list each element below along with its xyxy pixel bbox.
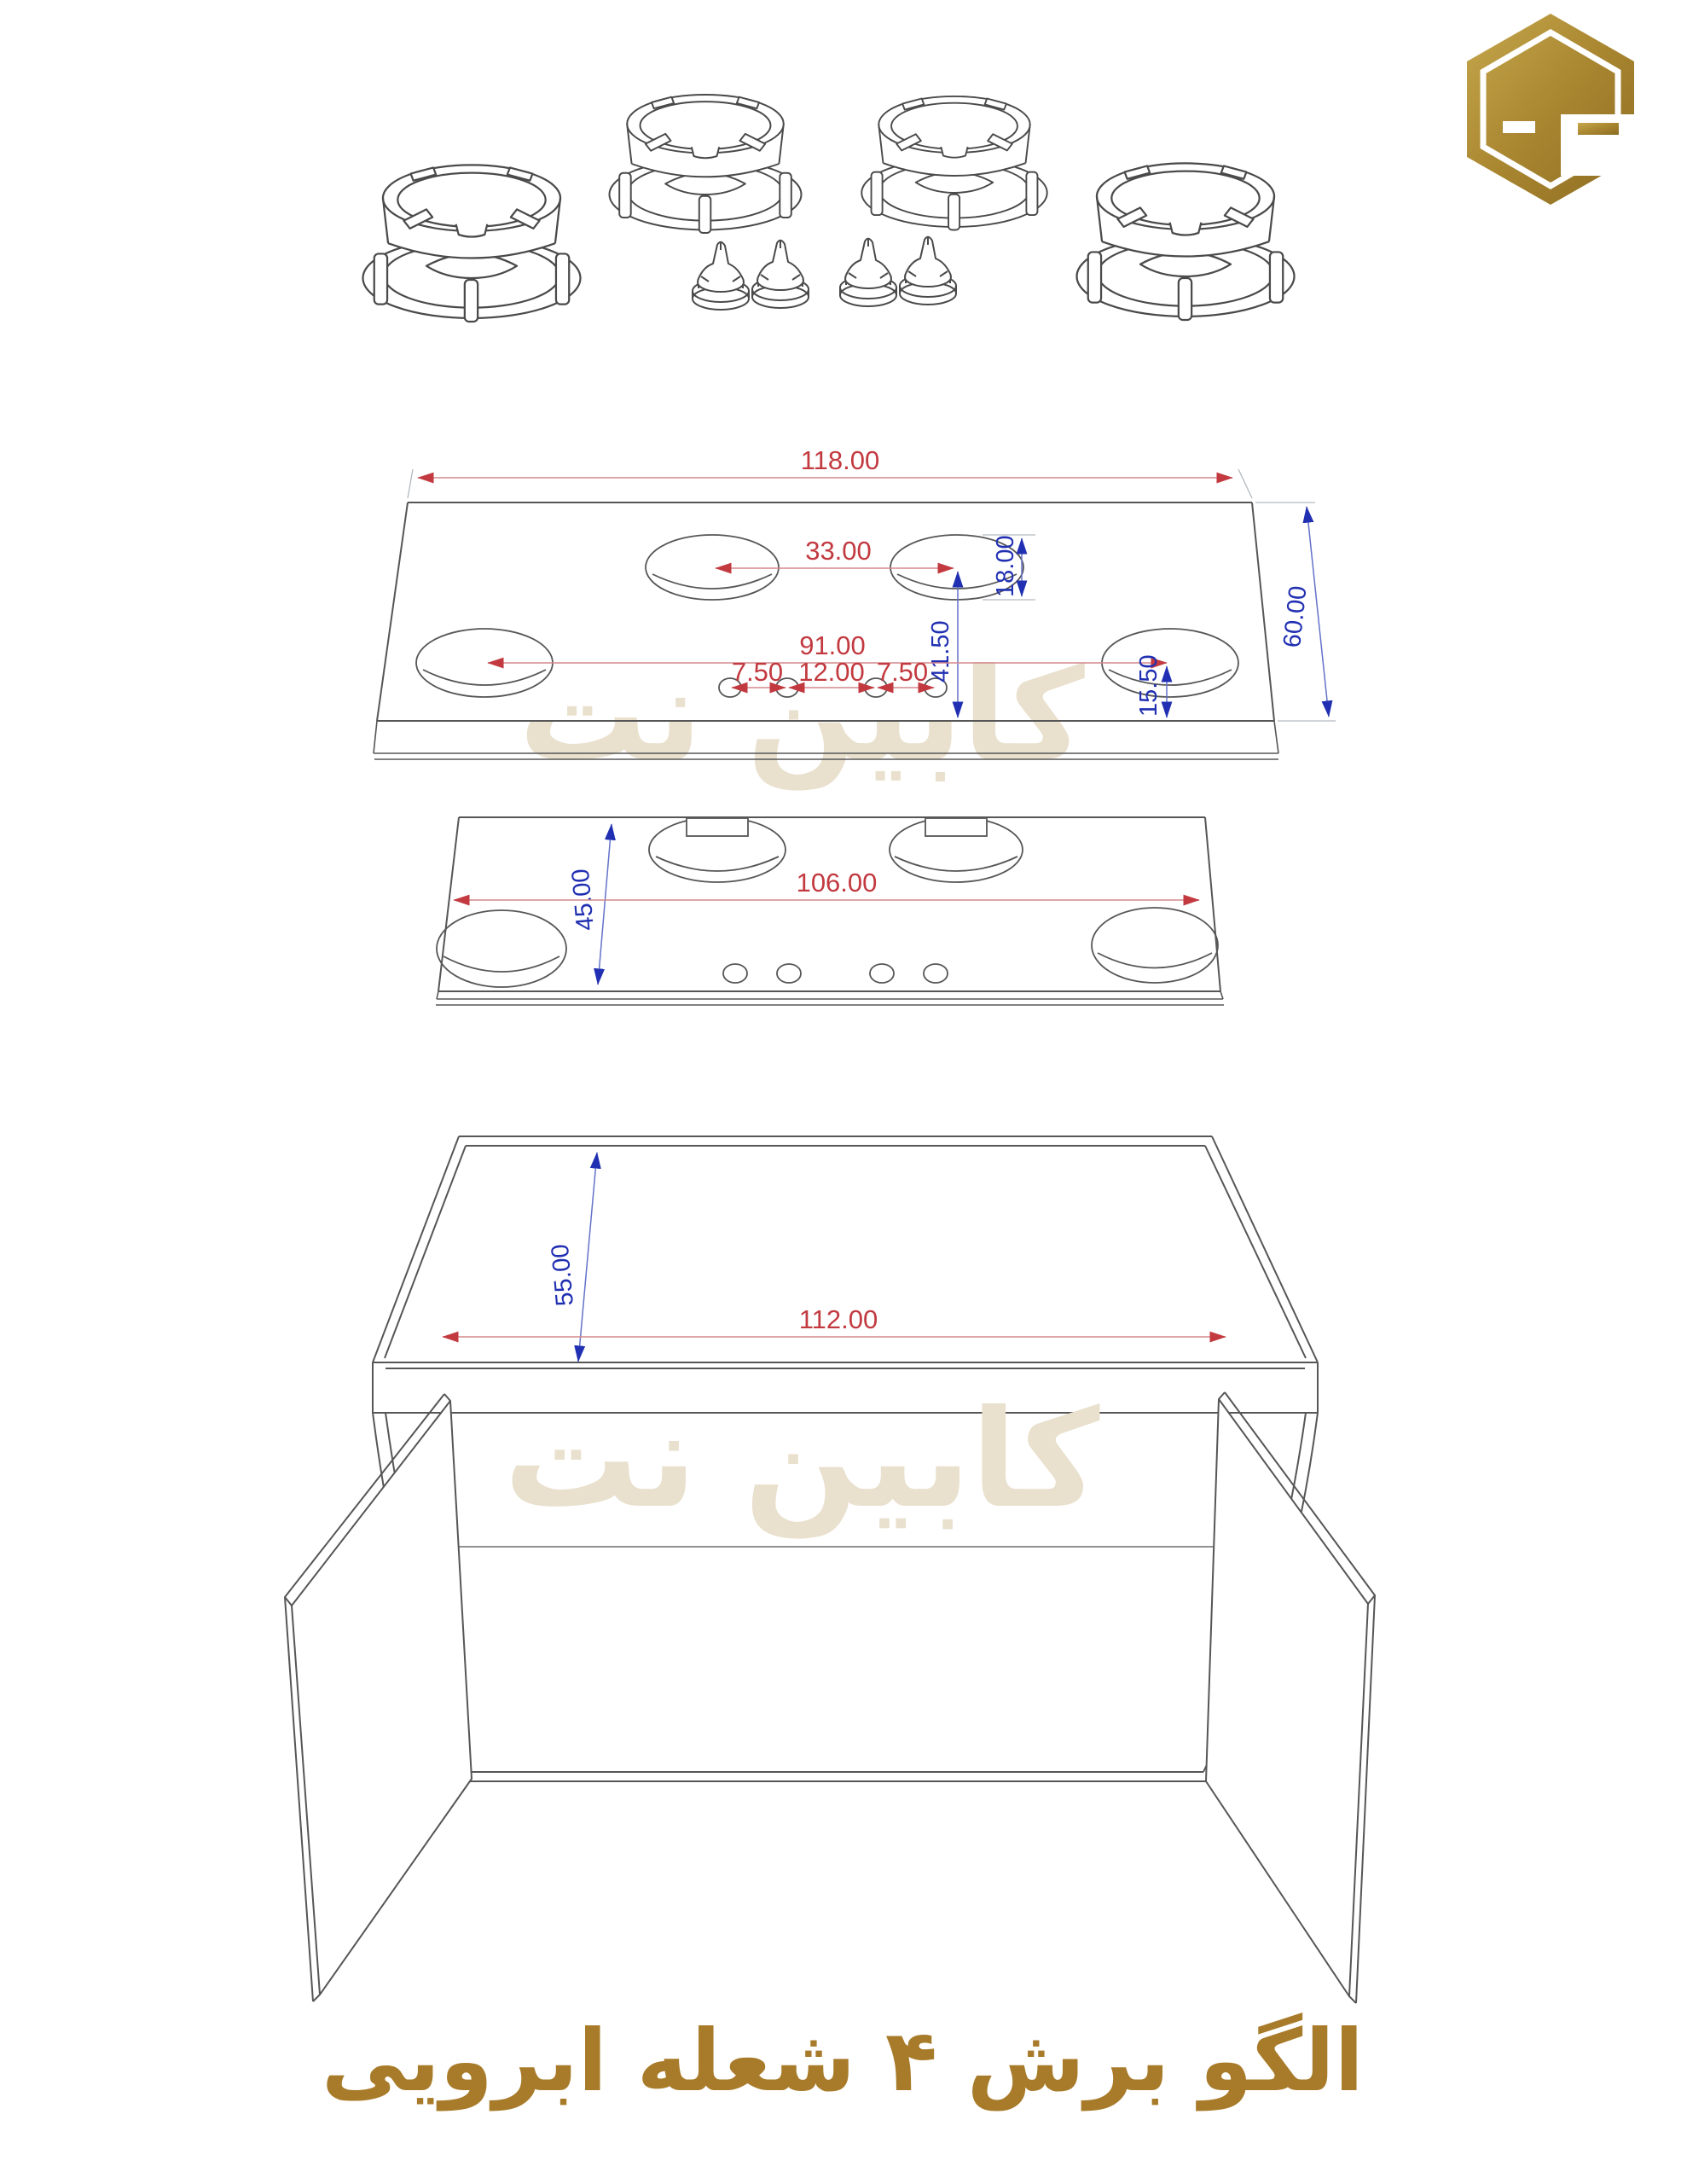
jet-cap-4 <box>900 236 956 305</box>
drawing-sheet: کابین نت 118.00 33.00 18.00 41.50 91.00 <box>0 0 1687 2184</box>
jet-cap-1 <box>693 241 749 310</box>
dim-knob-c: 7.50 <box>877 657 928 687</box>
mid-panel-drawing <box>436 817 1224 1005</box>
burner-ring-3 <box>861 96 1047 230</box>
burner-ring-2 <box>610 95 802 233</box>
dim-edge-v-15: 15.50 <box>1135 654 1162 717</box>
dim-width-118: 118.00 <box>801 445 880 475</box>
burner-ring-4 <box>1077 163 1295 320</box>
cabinet-dimensions: 55.00 112.00 <box>443 1153 1226 1362</box>
knob-hole <box>723 964 948 983</box>
mid-panel-dimensions: 45.00 106.00 <box>454 824 1199 985</box>
jet-cap-3 <box>840 238 896 306</box>
dim-top-depth-55: 55.00 <box>547 1243 579 1307</box>
cabinet-door-right <box>1206 1392 1375 2003</box>
dim-knob-a: 7.50 <box>732 657 783 687</box>
brand-logo-icon <box>1467 14 1634 205</box>
sheet-title: الگو برش ۴ شعله ابرویی <box>322 2011 1364 2111</box>
dim-hole-gap-33: 33.00 <box>805 536 872 566</box>
watermark-text-lower: کابین نت <box>504 1381 1100 1539</box>
jet-cap-2 <box>752 240 809 308</box>
dim-knob-b: 12.00 <box>798 657 865 687</box>
cabinet-door-left <box>285 1394 472 2001</box>
dim-width-112: 112.00 <box>799 1304 878 1334</box>
dim-width-106: 106.00 <box>797 868 878 897</box>
burner-hole <box>437 817 1218 987</box>
cabinet-drawing <box>285 1136 1375 2003</box>
dim-depth-60: 60.00 <box>1278 584 1312 649</box>
dim-span-91: 91.00 <box>799 630 866 660</box>
burner-ring-1 <box>363 165 581 322</box>
dim-hole-v-18: 18.00 <box>992 535 1019 597</box>
dim-row-v-41: 41.50 <box>927 620 954 682</box>
